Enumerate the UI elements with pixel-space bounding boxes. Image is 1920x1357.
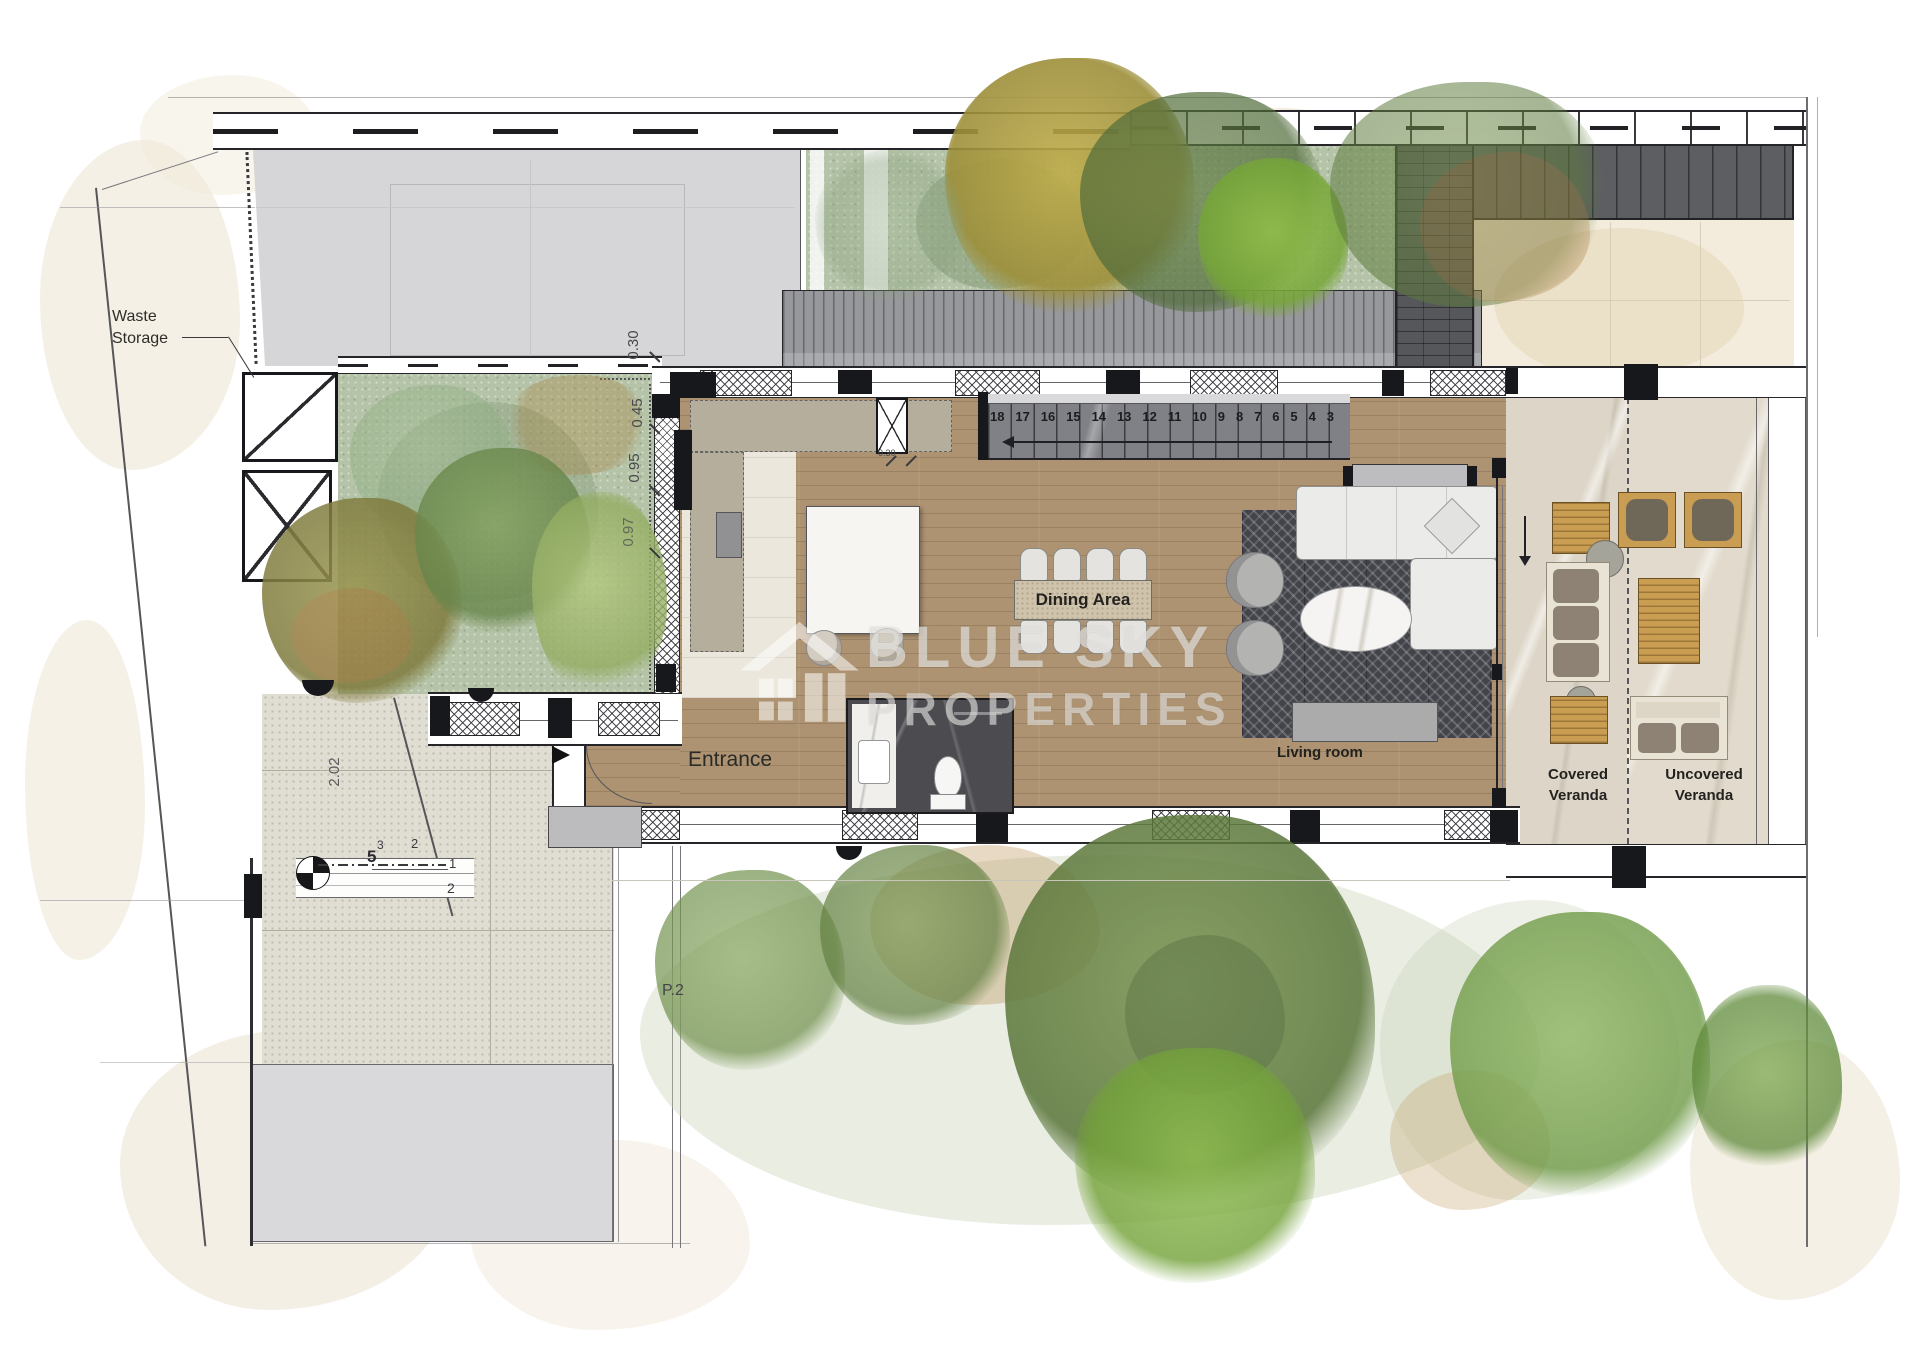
west-garden-wall [338, 356, 662, 374]
wall-hatch-segment [598, 702, 660, 736]
tree-canopy [820, 845, 1010, 1025]
wall-post [430, 696, 450, 736]
tree-canopy [655, 870, 845, 1070]
timber-deck-walkway [782, 290, 1482, 374]
palm-plant [1075, 1048, 1315, 1283]
planting-dotted-edge [649, 384, 651, 690]
site-boundary-corner [102, 151, 218, 190]
outdoor-coffee-table [1638, 578, 1700, 664]
setback-dashdot-line [318, 864, 446, 866]
stair-number: 4 [1309, 409, 1316, 425]
tv-console [1292, 702, 1438, 742]
outdoor-side-table [1550, 696, 1608, 744]
planter-wall [810, 146, 824, 294]
north-courtyard-garden [806, 144, 1395, 298]
wall-post [656, 664, 676, 692]
watercolor-wash [25, 620, 145, 960]
garden-mottle [916, 159, 1086, 289]
stair-numbers-row: 18 17 16 15 14 13 12 11 10 9 8 7 6 5 4 3 [990, 409, 1334, 425]
stair-number: 8 [1236, 409, 1243, 425]
site-grid-line [60, 207, 255, 208]
waste-storage-label: Waste Storage [112, 306, 168, 350]
parcel-boundary-line [680, 846, 681, 1248]
slide-direction-arrowhead [1519, 556, 1531, 566]
armchair [1226, 620, 1284, 676]
stair-number: 16 [1041, 409, 1055, 425]
uncovered-veranda-label: Uncovered Veranda [1642, 764, 1766, 806]
waste-leader-line [182, 337, 228, 338]
covered-veranda-line1: Covered [1518, 764, 1638, 785]
lounge-chair [1618, 492, 1676, 548]
wall-dashes [213, 129, 1130, 134]
wall-post [1506, 368, 1518, 394]
entrance-exterior-step [548, 806, 642, 848]
dimension-label: 0.97 [620, 507, 636, 557]
covered-veranda-line2: Veranda [1518, 785, 1638, 806]
gravel-grid-line [490, 694, 491, 1064]
sofa-cushion [1638, 723, 1676, 753]
concrete-slab-southwest [252, 1064, 614, 1242]
outdoor-sofa-covered [1546, 562, 1610, 682]
stair-number: 9 [1218, 409, 1225, 425]
terrace-wash [1494, 228, 1744, 378]
waste-storage-room [242, 372, 338, 462]
stair-landing-strip [988, 394, 1350, 404]
tree-inner-shade [1125, 935, 1285, 1095]
soil-patch [1390, 1070, 1550, 1210]
floor-plan-canvas: 18 17 16 15 14 13 12 11 10 9 8 7 6 5 4 3… [0, 0, 1920, 1357]
stair-number: 10 [1192, 409, 1206, 425]
dimension-label: 0.30 [625, 320, 641, 370]
benchmark-symbol [296, 856, 330, 890]
covered-veranda-label: Covered Veranda [1518, 764, 1638, 806]
lounge-chair [1684, 492, 1742, 548]
dimension-label: 0.45 [629, 388, 645, 438]
step-number: 1 [449, 856, 456, 871]
stair-number: 5 [1290, 409, 1297, 425]
sofa-cushion [1553, 606, 1599, 640]
palm-plant [1692, 985, 1842, 1175]
terrace-grid-line [1700, 222, 1701, 386]
site-bottom-line [250, 1243, 690, 1244]
living-room-label: Living room [1277, 744, 1363, 761]
lounge-cushion [1626, 499, 1668, 541]
outdoor-sofa-uncovered [1630, 696, 1728, 760]
veranda-east-wall [1768, 394, 1806, 846]
sofa-cushion [1553, 643, 1599, 677]
dumbwaiter-shaft [876, 398, 908, 454]
armchair [1226, 552, 1284, 608]
stair-number: 17 [1015, 409, 1029, 425]
tree-canopy [1005, 815, 1375, 1205]
site-grid-line [1817, 97, 1818, 637]
wall-dashes [338, 364, 662, 367]
wall-post [1624, 364, 1658, 400]
glass-wall-frame [1492, 664, 1502, 680]
sofa-cushion [1681, 723, 1719, 753]
north-site-fence [1130, 110, 1806, 146]
waste-storage-line1: Waste [112, 306, 168, 328]
site-grid-line [40, 900, 252, 901]
planter-pot [836, 846, 862, 860]
waste-storage-room [242, 470, 332, 582]
west-garden [338, 372, 662, 694]
north-site-wall [213, 112, 1130, 150]
step-number: 5 [367, 847, 376, 867]
waste-storage-line2: Storage [112, 328, 168, 350]
brand-house-icon [732, 598, 867, 743]
wall-hatch-segment [1152, 810, 1230, 840]
wall-post [244, 874, 262, 918]
coffee-table-oval [1300, 586, 1412, 652]
site-boundary-top [168, 97, 1808, 98]
glass-wall-line [1502, 486, 1503, 800]
wc-sink [858, 740, 890, 784]
glass-wall-frame [1492, 458, 1506, 478]
brand-watermark-line2: PROPERTIES [866, 682, 1233, 736]
stair-number: 7 [1254, 409, 1261, 425]
veranda-south-wall [1506, 844, 1806, 878]
oven-appliance [716, 512, 742, 558]
stair-wall-end [978, 392, 988, 460]
garden-underwash [640, 855, 1540, 1225]
dining-area-label: Dining Area [1036, 590, 1131, 610]
stair-number: 14 [1092, 409, 1106, 425]
fence-dashes [1130, 126, 1806, 130]
wall-post [1382, 370, 1404, 396]
dining-chair [1053, 548, 1081, 582]
dining-chair [1086, 548, 1114, 582]
step-number: 2 [447, 880, 455, 896]
terrace-grid-line [1478, 300, 1790, 301]
stair-number: 3 [1327, 409, 1334, 425]
stair-number: 13 [1117, 409, 1131, 425]
stair-number: 11 [1168, 409, 1182, 425]
tree-canopy [1450, 912, 1710, 1197]
glass-wall-frame [1492, 788, 1506, 808]
stair-number: 6 [1272, 409, 1279, 425]
stair-number: 12 [1142, 409, 1156, 425]
wall-post [1612, 846, 1646, 888]
planting-dotted-edge [600, 378, 658, 380]
sofa-back [1636, 702, 1720, 718]
parcel-boundary-line [672, 846, 673, 1248]
entrance-label: Entrance [688, 748, 772, 772]
stair-direction-arrowhead [1002, 436, 1014, 448]
site-boundary-right [1806, 97, 1808, 1247]
stair-direction-line [1014, 441, 1332, 443]
concrete-slab-northwest [215, 150, 800, 366]
wall-hatch-segment [448, 702, 520, 736]
wall-post [1490, 810, 1518, 842]
refrigerator [670, 372, 716, 398]
pergola-roof-side [1395, 126, 1474, 370]
toilet-bowl [934, 756, 962, 798]
uncovered-veranda-line1: Uncovered [1642, 764, 1766, 785]
wall-post [976, 810, 1008, 842]
slab-marking [530, 160, 531, 360]
terrace-grid-line [1610, 222, 1611, 386]
step-leader-line [372, 869, 448, 870]
house-south-wall [552, 806, 1520, 844]
dining-chair [1020, 548, 1048, 582]
lounge-cushion [1692, 499, 1734, 541]
wall-post [838, 370, 872, 394]
garden-underwash [1380, 900, 1680, 1200]
slide-direction-line [1524, 516, 1526, 556]
dimension-label: 0.95 [626, 443, 642, 493]
planter-wall [864, 146, 888, 296]
glass-wall-line [1496, 460, 1498, 806]
wall-hatch-segment [1430, 370, 1506, 396]
site-grid-line [100, 1062, 252, 1063]
interior-staircase [978, 392, 1350, 460]
wall-post [1290, 810, 1320, 842]
dimension-label: 2.02 [326, 747, 342, 797]
entrance-arrow-icon [552, 746, 570, 764]
wall-hatch-segment [842, 810, 918, 840]
parcel-label: P.2 [662, 982, 684, 1000]
wall-post [1106, 370, 1140, 394]
uncovered-veranda-line2: Veranda [1642, 785, 1766, 806]
garden-mottle [378, 402, 598, 602]
brand-watermark-line1: BLUE SKY [866, 614, 1215, 681]
kitchen-counter-north [690, 400, 952, 452]
watercolor-wash [40, 140, 240, 470]
step-number: 2 [411, 836, 418, 851]
gravel-grid-line [262, 930, 614, 931]
glazing-line [560, 824, 1510, 825]
soil-patch [870, 845, 1100, 1005]
stair-number: 15 [1066, 409, 1080, 425]
watercolor-wash [1690, 1040, 1900, 1300]
sofa-cushion [1553, 569, 1599, 603]
toilet-tank [930, 794, 966, 810]
tall-cabinet [674, 430, 692, 510]
dining-chair [1119, 548, 1147, 582]
step-number: 3 [377, 838, 384, 852]
sofa-section-right [1410, 558, 1498, 650]
wall-post [548, 698, 572, 738]
stair-number: 18 [990, 409, 1004, 425]
slab-marking [255, 207, 795, 208]
path-edge-line [612, 880, 1510, 881]
